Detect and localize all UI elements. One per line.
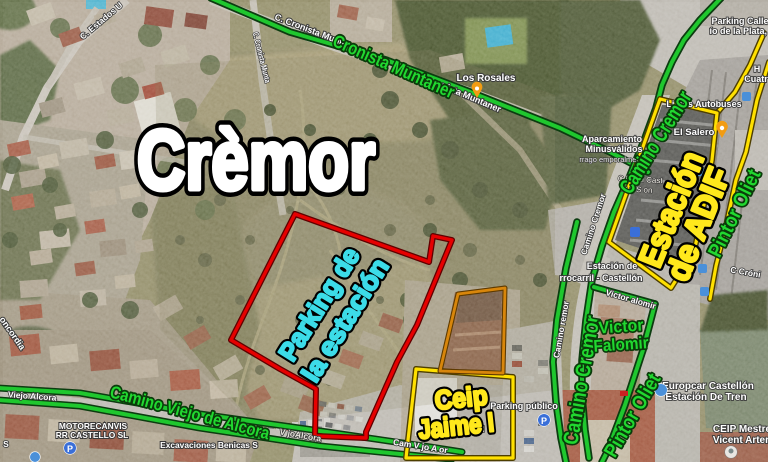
svg-text:Parking Calle: Parking Calle xyxy=(711,16,768,26)
svg-text:Parking público: Parking público xyxy=(490,401,558,411)
svg-text:Excavaciones Benicas S: Excavaciones Benicas S xyxy=(160,440,258,450)
svg-text:Aparcamiento: Aparcamiento xyxy=(582,134,643,144)
svg-text:Crèmor: Crèmor xyxy=(137,114,375,208)
svg-text:Estación De Tren: Estación De Tren xyxy=(665,392,746,403)
svg-text:Falomir: Falomir xyxy=(593,333,650,356)
svg-text:ío de la Plata, 3: ío de la Plata, 3 xyxy=(709,26,768,36)
svg-text:Cuatr: Cuatr xyxy=(744,74,768,84)
svg-text:P: P xyxy=(541,416,547,426)
svg-text:Vicent Arteró: Vicent Arteró xyxy=(713,435,768,446)
svg-text:rrocarril - Castellón: rrocarril - Castellón xyxy=(559,273,642,283)
svg-text:Estación de: Estación de xyxy=(587,261,638,271)
svg-text:Los Rosales: Los Rosales xyxy=(457,73,516,84)
svg-text:CEIP Mestre: CEIP Mestre xyxy=(713,424,768,435)
svg-text:Europcar Castellón: Europcar Castellón xyxy=(662,381,754,392)
svg-text:H: H xyxy=(754,64,761,74)
svg-text:RR CASTELLO SL: RR CASTELLO SL xyxy=(56,430,129,440)
svg-text:S: S xyxy=(3,439,9,449)
svg-text:P: P xyxy=(67,444,73,454)
svg-text:El Salero: El Salero xyxy=(674,127,715,138)
